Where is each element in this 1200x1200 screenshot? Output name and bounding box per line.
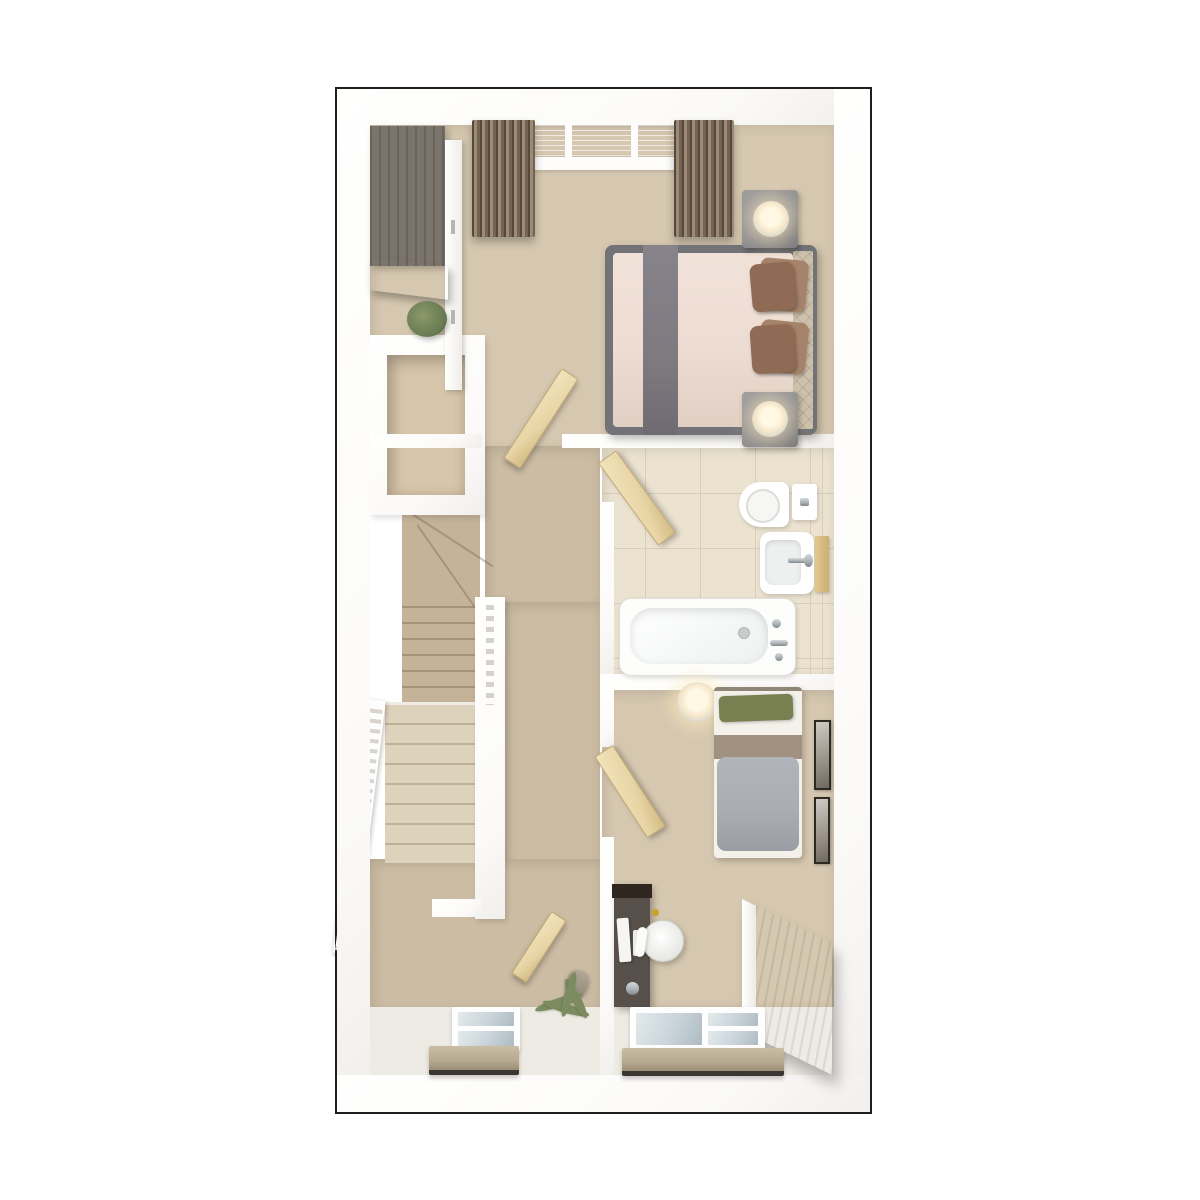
wardrobe-handle: [451, 310, 455, 324]
bath-tap-hot: [772, 619, 781, 628]
grey-duvet: [717, 757, 799, 851]
desk-chair: [642, 920, 684, 962]
pillow-front-bottom: [749, 324, 796, 375]
bedroom2-wall-lower-segment: [600, 837, 614, 1077]
bathroom-wood-shelf: [815, 536, 829, 592]
wardrobe-handle: [451, 220, 455, 234]
art-canvas: [816, 799, 828, 862]
bath-tap-cold: [775, 653, 783, 661]
plant: [407, 301, 447, 337]
gold-accent: [652, 909, 659, 916]
monitor: [616, 918, 631, 963]
landing-upper-floor: [485, 446, 600, 606]
desk-top-edge: [612, 884, 652, 898]
curtains-left: [472, 120, 535, 237]
window-pane: [458, 1031, 514, 1046]
outer-wall-left: [337, 89, 370, 1112]
bathtub: [619, 598, 796, 676]
bedroom2-wall-upper-segment: [600, 690, 614, 747]
bed-throw-band: [714, 735, 802, 759]
staircase-lower-flight: [385, 702, 477, 865]
bedroom-wall-left-segment: [370, 434, 482, 448]
outer-wall-bottom: [337, 1075, 870, 1112]
green-pillow: [719, 694, 794, 723]
window-mullion: [631, 125, 638, 158]
stair-partition-wall: [475, 597, 505, 919]
stair-bottom-wall-stub: [432, 899, 482, 917]
flush-button: [800, 498, 809, 506]
toilet: [739, 482, 789, 527]
pendant-lamp: [677, 682, 717, 722]
art-canvas: [816, 722, 829, 788]
pillow-front-top: [749, 261, 797, 313]
table-lamp-bottom: [752, 401, 788, 437]
curtains-right: [674, 120, 734, 237]
window-pane: [458, 1012, 514, 1026]
window-pane: [708, 1031, 758, 1045]
tap-body: [804, 554, 813, 567]
toilet-cistern: [792, 484, 817, 520]
window-pane: [708, 1013, 758, 1026]
toilet-seat: [746, 489, 780, 523]
bathtub-drain: [738, 627, 750, 639]
single-bed: [714, 687, 802, 858]
bed-runner: [643, 245, 678, 435]
upper-stair-treads: [402, 592, 480, 703]
floorplan-page: { "plan": { "type": "3d-floorplan-top-vi…: [0, 0, 1200, 1200]
hall-window: [452, 1007, 520, 1051]
palm-plant: [532, 964, 607, 1034]
outer-wall-right: [834, 89, 870, 1112]
bathroom-left-wall: [600, 502, 614, 674]
wall-art-2: [814, 797, 830, 864]
hall-radiator: [429, 1046, 519, 1075]
bath-spout: [770, 640, 788, 646]
bedroom2-radiator: [622, 1048, 784, 1076]
window-pane: [636, 1013, 702, 1045]
outer-wall-top: [337, 89, 870, 125]
wardrobe-top: [370, 126, 445, 266]
window-mullion: [565, 125, 572, 158]
bay-window-glazing: [507, 125, 699, 158]
wall-art-1: [814, 720, 831, 790]
balustrade-spindles: [486, 605, 494, 705]
table-lamp-top: [753, 201, 789, 237]
bedroom2-window: [630, 1007, 765, 1051]
staircase-upper-flight: [402, 507, 480, 703]
desk-lamp-base: [626, 982, 639, 995]
basin: [760, 532, 814, 594]
floorplan-outline: [335, 87, 872, 1114]
